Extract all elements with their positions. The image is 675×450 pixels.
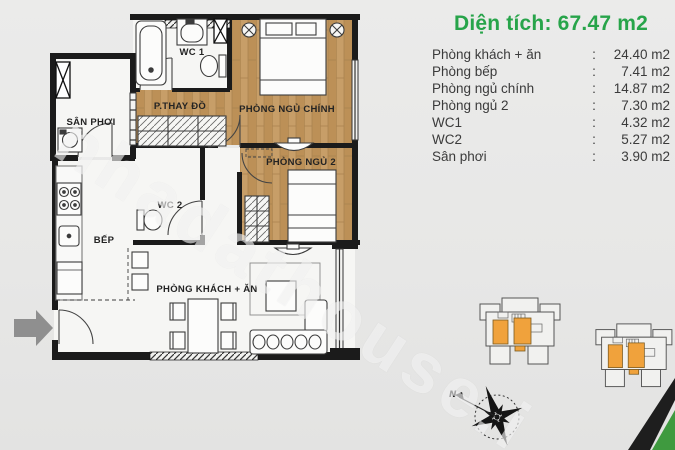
area-row-value: 3.90 m2 xyxy=(598,148,670,165)
area-row-label: Sân phơi xyxy=(432,148,590,165)
toilet-wc1-icon xyxy=(201,55,227,77)
area-row-separator: : xyxy=(590,63,598,80)
area-row-value: 7.30 m2 xyxy=(598,97,670,114)
kitchen-label: BẾP xyxy=(94,235,115,246)
key-plan-building-1 xyxy=(480,298,560,364)
area-row-label: Phòng khách + ăn xyxy=(432,46,590,63)
area-row-value: 5.27 m2 xyxy=(598,131,670,148)
area-row-value: 4.32 m2 xyxy=(598,114,670,131)
stove-icon xyxy=(57,183,81,215)
area-row-value: 7.41 m2 xyxy=(598,63,670,80)
living-label: PHÒNG KHÁCH + ĂN xyxy=(156,283,257,295)
area-row-separator: : xyxy=(590,46,598,63)
bed2-icon xyxy=(288,170,336,242)
compass-north-label: N xyxy=(449,390,457,400)
kitchen-sink-icon xyxy=(59,226,79,246)
area-row-wc1: WC1 : 4.32 m2 xyxy=(432,114,670,131)
washing-machine-icon xyxy=(58,128,82,152)
area-row-separator: : xyxy=(590,131,598,148)
wardrobe-dressing-icon xyxy=(138,116,226,146)
area-row-label: WC2 xyxy=(432,131,590,148)
area-row-label: Phòng ngủ chính xyxy=(432,80,590,97)
corner-stripes xyxy=(628,378,675,450)
area-row-value: 14.87 m2 xyxy=(598,80,670,97)
bathtub-icon xyxy=(136,21,166,85)
wc1-label: WC 1 xyxy=(180,47,205,58)
area-row-balcony: Sân phơi : 3.90 m2 xyxy=(432,148,670,165)
bedroom2-label: PHÒNG NGỦ 2 xyxy=(266,156,336,168)
balcony-window xyxy=(130,93,136,145)
wardrobe-bed2-icon xyxy=(245,196,269,242)
sink-icon xyxy=(177,19,207,45)
area-row-living: Phòng khách + ăn : 24.40 m2 xyxy=(432,46,670,63)
area-row-master-bedroom: Phòng ngủ chính : 14.87 m2 xyxy=(432,80,670,97)
area-row-wc2: WC2 : 5.27 m2 xyxy=(432,131,670,148)
master-bedroom-label: PHÒNG NGỦ CHÍNH xyxy=(239,103,335,115)
toilet-wc2-icon xyxy=(137,210,162,230)
area-row-separator: : xyxy=(590,148,598,165)
area-row-label: Phòng bếp xyxy=(432,63,590,80)
total-area-title: Diện tích: 67.47 m2 xyxy=(432,12,670,36)
area-table: Phòng khách + ăn : 24.40 m2 Phòng bếp : … xyxy=(432,46,670,165)
balcony-label: SÂN PHƠI xyxy=(66,116,115,128)
key-plan-building-2 xyxy=(596,324,672,387)
area-row-separator: : xyxy=(590,97,598,114)
area-row-label: WC1 xyxy=(432,114,590,131)
area-row-separator: : xyxy=(590,114,598,131)
area-row-value: 24.40 m2 xyxy=(598,46,670,63)
area-row-bedroom2: Phòng ngủ 2 : 7.30 m2 xyxy=(432,97,670,114)
area-row-label: Phòng ngủ 2 xyxy=(432,97,590,114)
wc2-label: WC 2 xyxy=(158,200,183,211)
entrance-arrow-icon xyxy=(14,310,53,346)
compass-icon: N xyxy=(449,377,533,450)
dressing-label: P.THAY ĐỒ xyxy=(154,100,206,112)
column-x-left xyxy=(56,62,70,98)
area-info-panel: Diện tích: 67.47 m2 Phòng khách + ăn : 2… xyxy=(432,12,670,165)
master-bed-icon xyxy=(260,19,326,95)
floorplan-page: WC 1 P.THAY ĐỒ PHÒNG NGỦ CHÍNH SÂN PHƠI … xyxy=(0,0,675,450)
area-row-separator: : xyxy=(590,80,598,97)
column-x-top xyxy=(214,19,227,43)
fridge-icon xyxy=(57,262,82,294)
hall-floor xyxy=(205,148,240,245)
wc2-floor xyxy=(135,148,205,242)
area-row-kitchen: Phòng bếp : 7.41 m2 xyxy=(432,63,670,80)
